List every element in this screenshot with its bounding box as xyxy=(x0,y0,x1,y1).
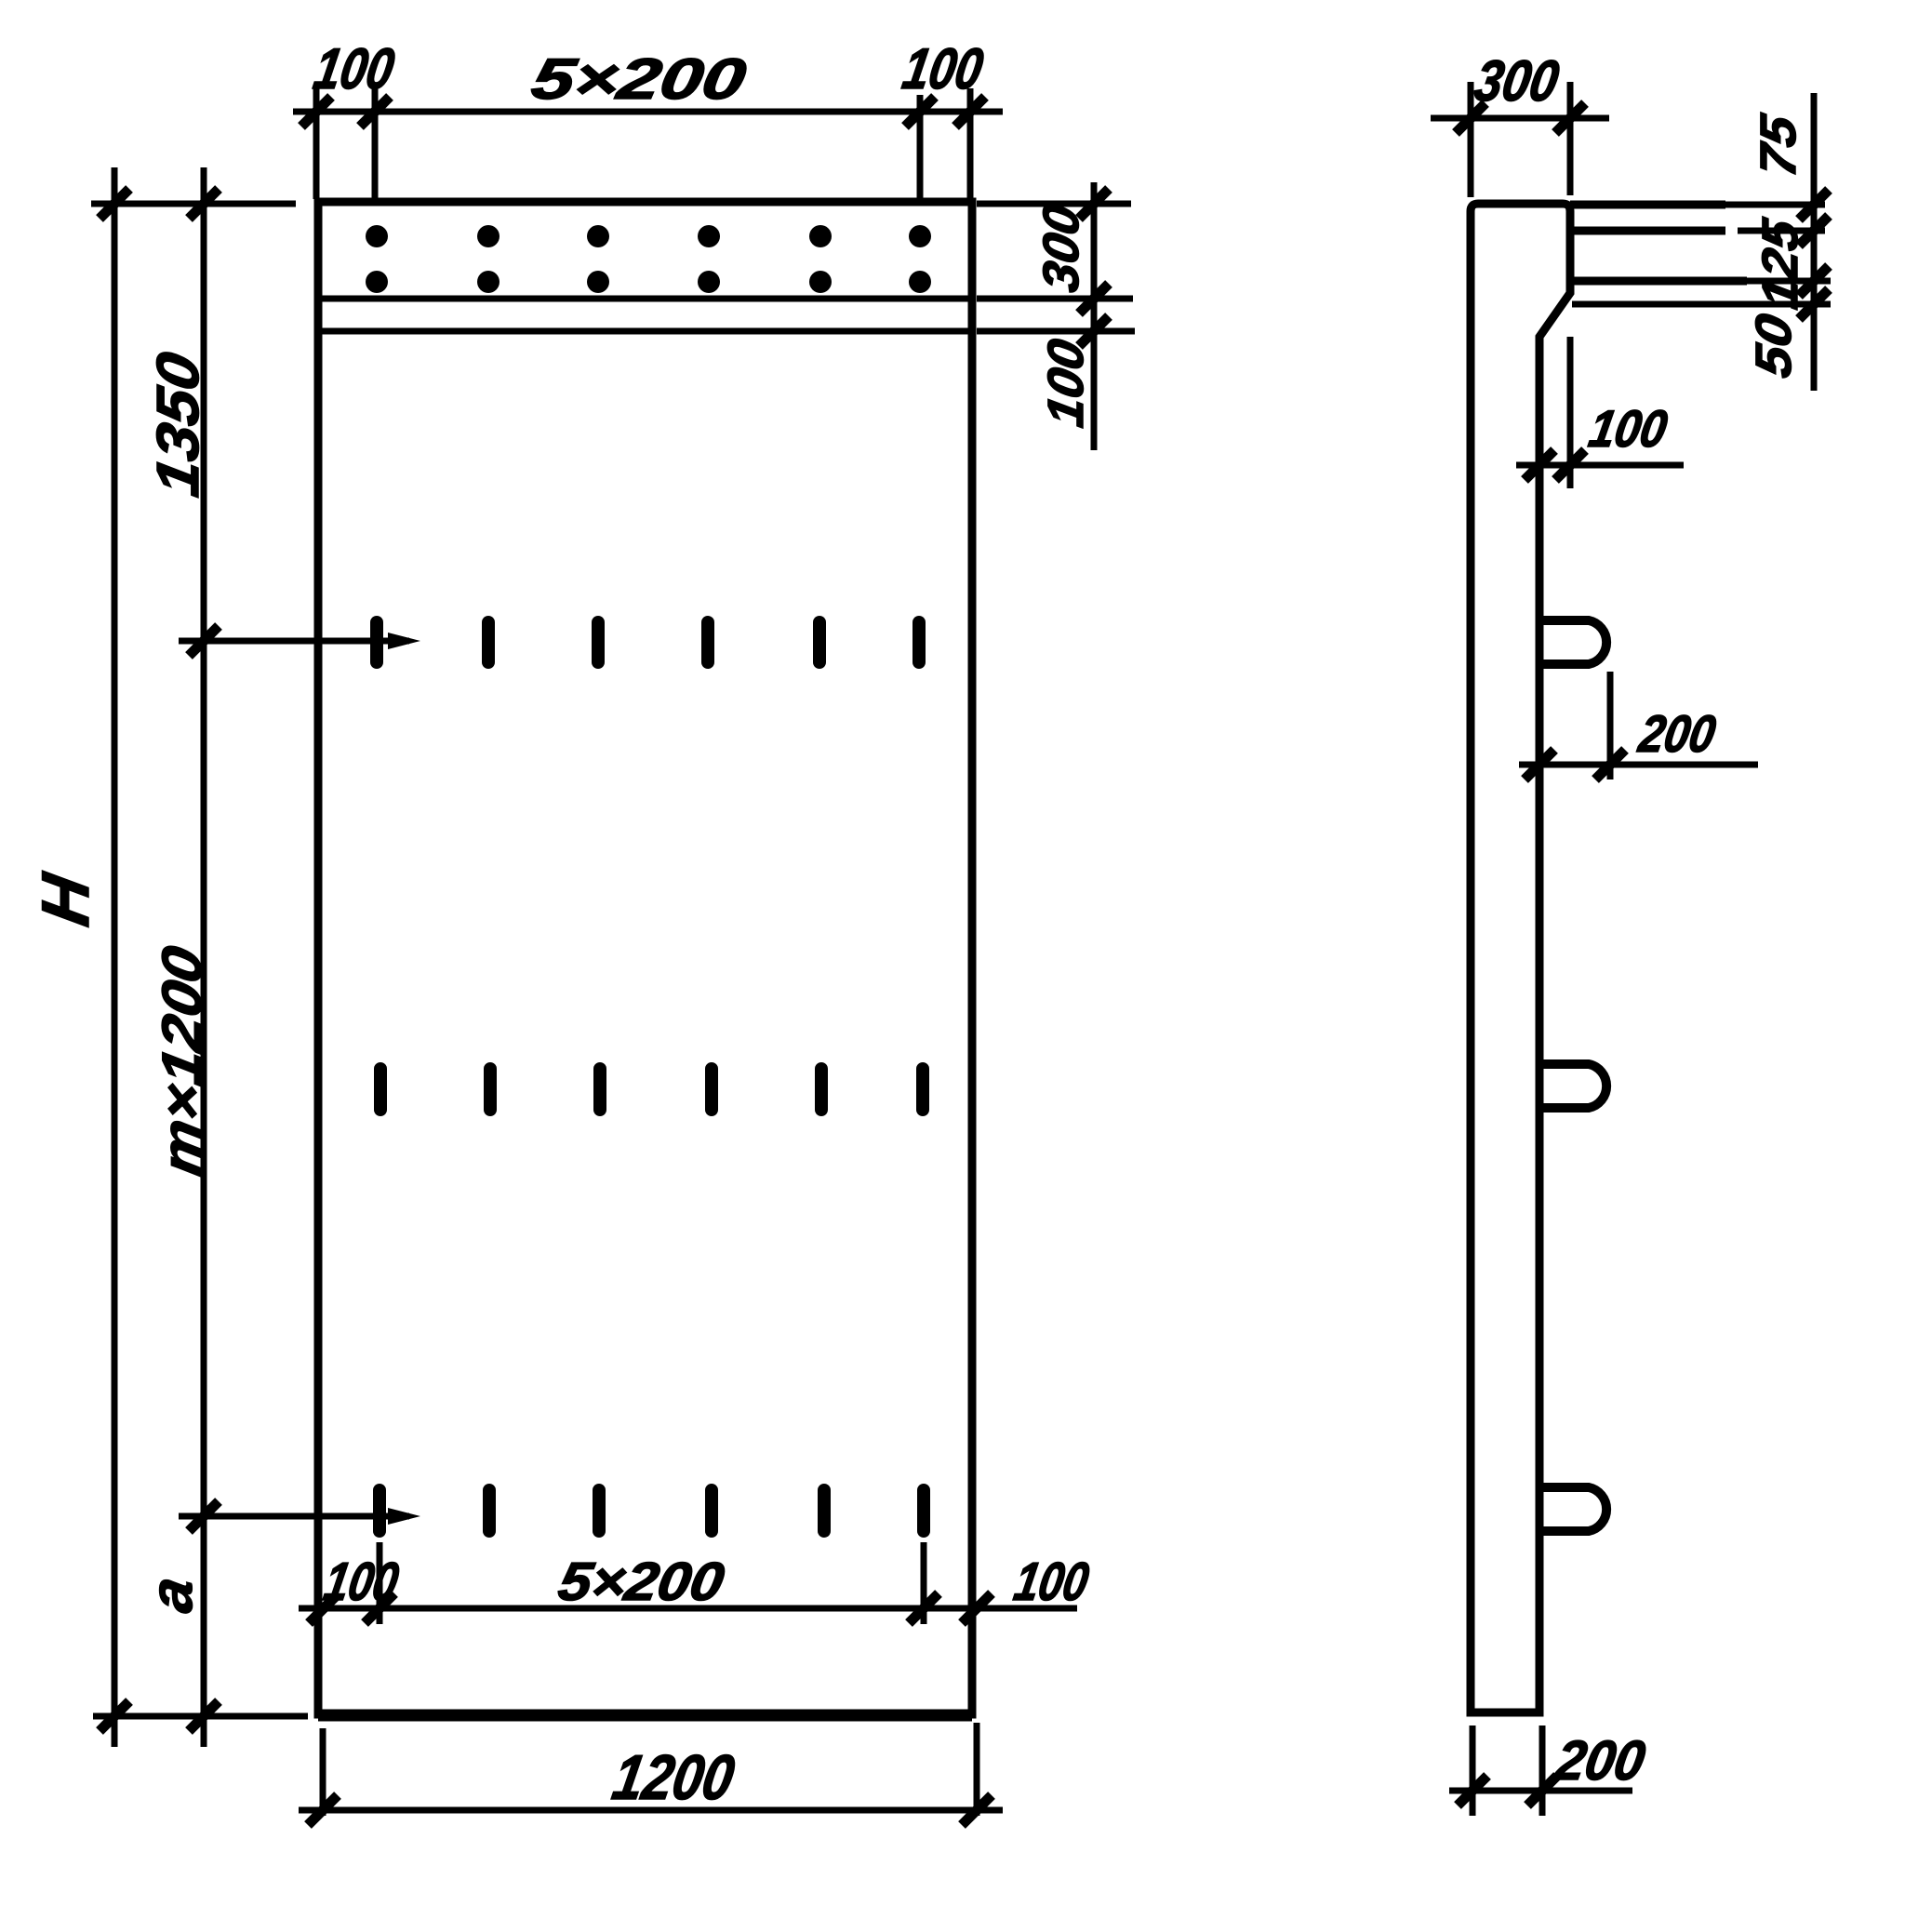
svg-text:5×200: 5×200 xyxy=(554,1552,728,1612)
svg-text:100: 100 xyxy=(320,1552,403,1612)
svg-text:75: 75 xyxy=(1750,111,1806,180)
svg-text:100: 100 xyxy=(1585,399,1672,458)
svg-text:100: 100 xyxy=(899,36,988,100)
svg-text:200: 200 xyxy=(1634,704,1720,763)
svg-text:1200: 1200 xyxy=(607,1741,739,1812)
svg-text:100: 100 xyxy=(1037,335,1094,431)
svg-text:m×1200: m×1200 xyxy=(150,941,212,1179)
svg-text:50: 50 xyxy=(1745,310,1802,381)
svg-text:1350: 1350 xyxy=(144,348,210,501)
svg-text:300: 300 xyxy=(1032,200,1089,296)
svg-text:100: 100 xyxy=(1010,1552,1093,1612)
svg-text:100: 100 xyxy=(310,36,399,100)
svg-text:300: 300 xyxy=(1471,48,1564,113)
svg-text:200: 200 xyxy=(1551,1728,1650,1791)
svg-text:125: 125 xyxy=(1752,215,1808,313)
svg-text:5×200: 5×200 xyxy=(527,47,752,111)
